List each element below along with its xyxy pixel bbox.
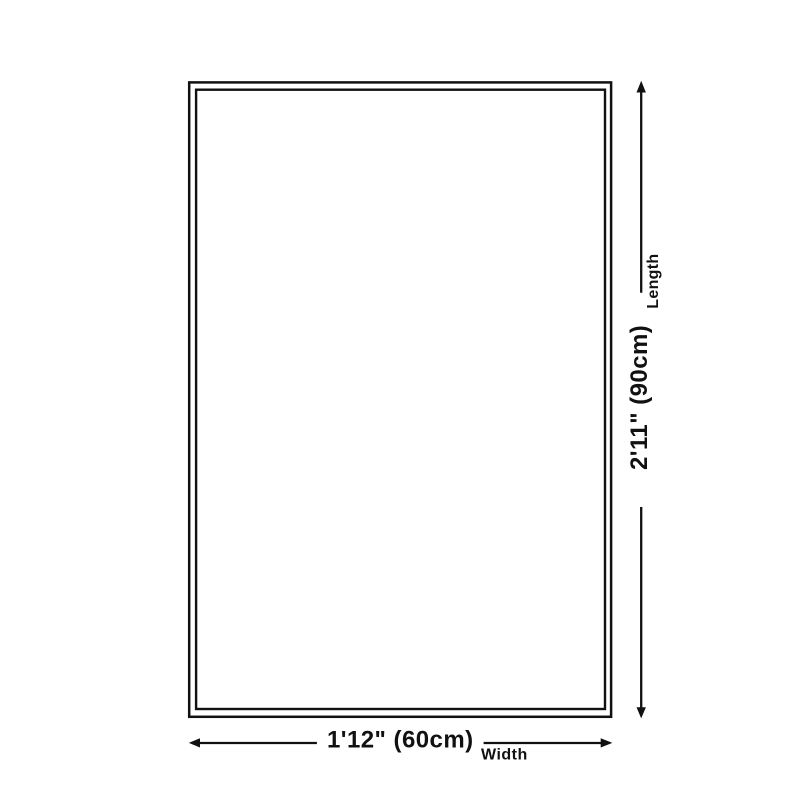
svg-text:1'12" (60cm): 1'12" (60cm) — [327, 727, 474, 754]
svg-text:Width: Width — [481, 747, 528, 764]
svg-text:2'11" (90cm): 2'11" (90cm) — [626, 325, 653, 470]
svg-text:Length: Length — [645, 254, 662, 309]
